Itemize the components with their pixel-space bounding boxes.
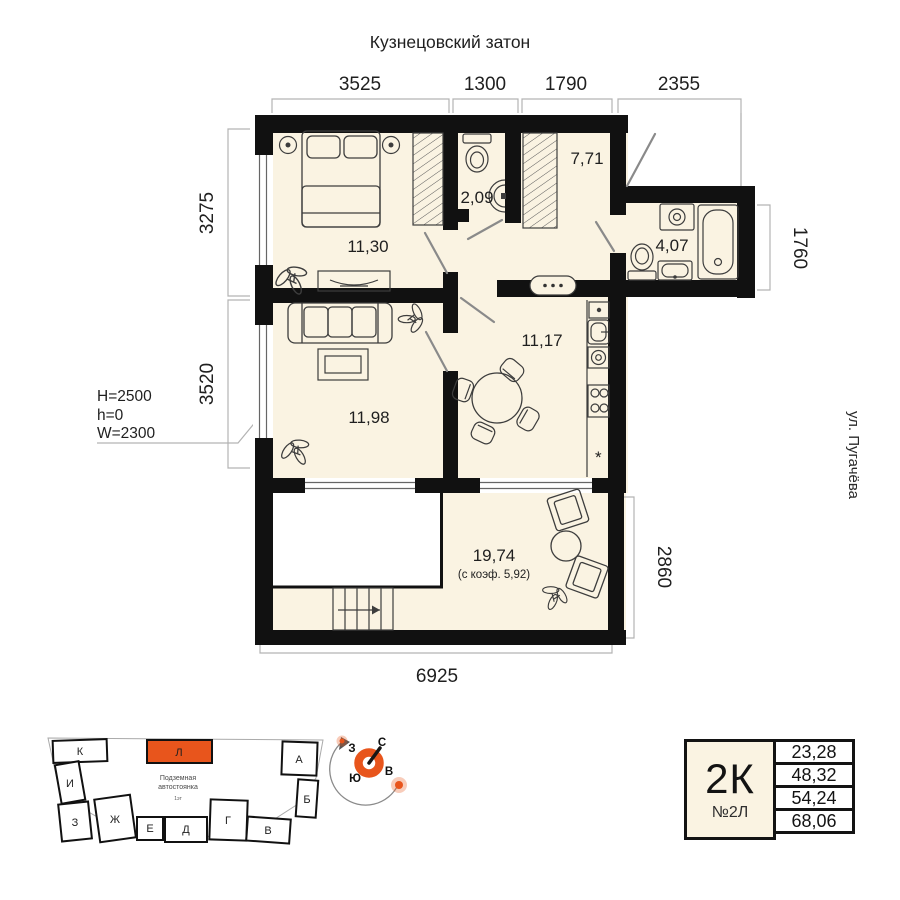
- dim-top-4: 2355: [658, 74, 700, 95]
- parking-label-line1: Подземная: [160, 775, 196, 782]
- block-l-label: Л: [175, 747, 182, 759]
- dim-left-upper: 3275: [197, 192, 218, 234]
- dim-top-2: 1300: [464, 74, 506, 95]
- parking-sublabel: 1эт: [174, 796, 182, 802]
- compass-north-label: С: [378, 737, 386, 749]
- compass-west-label: З: [348, 743, 355, 755]
- entry-door-icon: [627, 134, 655, 186]
- block-a-label: А: [295, 754, 303, 766]
- living-window-icon: [253, 325, 273, 438]
- wardrobe-icon: [523, 133, 557, 228]
- street-label: ул. Пугачёва: [845, 411, 862, 500]
- wardrobe-icon: [413, 133, 443, 225]
- compass: С В Ю З: [323, 722, 418, 822]
- room-area-terrace: 19,74: [473, 546, 516, 565]
- dim-left-lower: 3520: [197, 363, 218, 405]
- room-area-hallway: 7,71: [570, 149, 603, 168]
- location-title: Кузнецовский затон: [370, 32, 530, 52]
- dim-bottom: 6925: [416, 666, 458, 687]
- shoe-bench-icon: [530, 276, 576, 295]
- block-b-label: Б: [303, 794, 310, 806]
- area-value-row: 68,06: [773, 808, 855, 834]
- terrace-glazing-kitchen-icon: [480, 478, 592, 493]
- compass-east-label: В: [385, 766, 393, 778]
- dim-top-1: 3525: [339, 74, 381, 95]
- block-g-label: Г: [225, 815, 231, 827]
- terrace-glazing-living-icon: [305, 478, 415, 493]
- block-i-label: И: [66, 778, 74, 790]
- sun-dot-big: [395, 781, 403, 789]
- room-area-bathroom: 4,07: [655, 236, 688, 255]
- block-d-label: Д: [182, 824, 190, 836]
- block-zh-label: Ж: [110, 814, 120, 826]
- site-plan: К Л А И Б З Ж Е Д Г В Подземная автостоя…: [40, 726, 330, 861]
- compass-south-label: Ю: [349, 773, 361, 785]
- dim-right-terrace: 2860: [653, 546, 674, 588]
- dim-right-bath: 1760: [789, 227, 810, 269]
- floorplan-drawing: * Кузнецовский затон 3525 1300 1790 2355…: [0, 0, 900, 728]
- apartment-info-card: 2К №2Л 23,28 48,32 54,24 68,06: [684, 739, 855, 840]
- room-area-bedroom: 11,30: [347, 237, 388, 256]
- block-v-label: В: [264, 825, 271, 837]
- bedroom-window-icon: [253, 155, 273, 265]
- room-area-wc: 2,09: [460, 188, 493, 207]
- block-z-label: З: [72, 817, 79, 829]
- kitchen-star-mark: *: [595, 448, 602, 467]
- dim-top-3: 1790: [545, 74, 587, 95]
- parking-label-line2: автостоянка: [158, 784, 198, 791]
- terrace-void: [273, 493, 441, 587]
- sill-height-note: h=0: [97, 407, 124, 424]
- window-width-note: W=2300: [97, 425, 156, 442]
- block-k-label: К: [77, 746, 84, 758]
- block-e-label: Е: [146, 823, 153, 835]
- apartment-number: №2Л: [712, 804, 749, 822]
- room-area-kitchen: 11,17: [521, 331, 562, 350]
- sun-dot-small: [340, 739, 345, 744]
- apartment-type-cell: 2К №2Л: [684, 739, 776, 840]
- apartment-type: 2К: [705, 758, 755, 800]
- ceiling-height-note: H=2500: [97, 388, 152, 405]
- room-area-living: 11,98: [348, 408, 389, 427]
- apartment-areas-column: 23,28 48,32 54,24 68,06: [773, 739, 855, 840]
- terrace-coef-note: (с коэф. 5,92): [458, 569, 530, 581]
- floorplan-page: * Кузнецовский затон 3525 1300 1790 2355…: [0, 0, 900, 900]
